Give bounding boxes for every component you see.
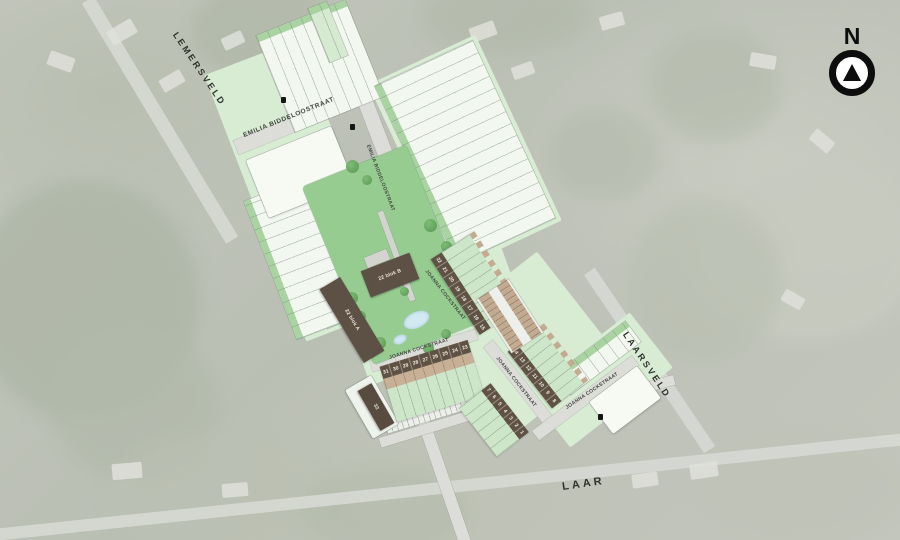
compass-ring bbox=[829, 50, 875, 96]
blok-a-label: 22 blok A bbox=[343, 308, 360, 332]
lot32-label: 32 bbox=[372, 403, 380, 411]
tree bbox=[424, 219, 437, 232]
north-label: N bbox=[820, 24, 884, 48]
tree bbox=[400, 287, 409, 296]
utility-cabin-icon bbox=[598, 414, 603, 420]
utility-cabin-icon bbox=[350, 124, 355, 130]
tree bbox=[362, 175, 372, 185]
site-plan-map[interactable]: 22 blok B 22 blok A 32 31302928272625242… bbox=[0, 0, 900, 540]
blok-b-label: 22 blok B bbox=[378, 268, 403, 282]
utility-cabin-icon bbox=[281, 97, 286, 103]
north-compass: N bbox=[820, 24, 884, 96]
north-arrow-icon bbox=[843, 64, 861, 81]
tree bbox=[346, 160, 359, 173]
